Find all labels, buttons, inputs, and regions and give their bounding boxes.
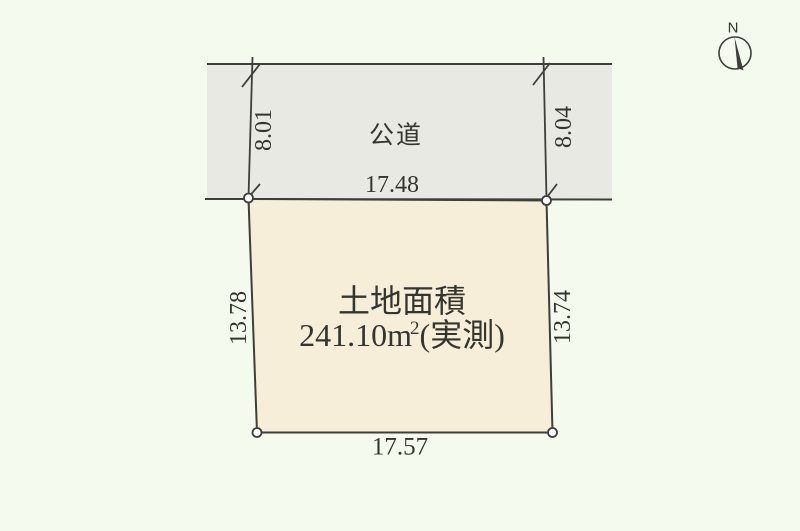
land-area-superscript: 2 (410, 318, 420, 339)
vertex-marker-bottom-right (548, 428, 557, 437)
survey-diagram-page: N 公道 17.48 8.01 8.04 13.78 13.74 17.57 土… (0, 0, 800, 531)
frontage-dimension-label: 17.48 (365, 173, 419, 197)
vertex-marker-bottom-left (253, 428, 262, 437)
land-area-note: (実測) (420, 317, 505, 353)
land-area-value: 241.10m2(実測) (299, 319, 505, 351)
left-side-dimension-label: 13.78 (227, 291, 251, 345)
land-area-title: 土地面積 (299, 285, 505, 317)
land-area-number: 241.10m (299, 317, 412, 353)
bottom-side-dimension-label: 17.57 (372, 435, 428, 460)
vertex-marker-top-right (542, 196, 551, 205)
right-depth-dimension-label: 8.04 (552, 106, 576, 148)
compass-north-label: N (728, 21, 739, 36)
land-area-annotation: 土地面積 241.10m2(実測) (299, 285, 505, 351)
left-depth-dimension-label: 8.01 (252, 109, 276, 151)
vertex-marker-top-left (244, 194, 253, 203)
right-side-dimension-label: 13.74 (551, 290, 575, 344)
road-name-label: 公道 (369, 124, 423, 149)
